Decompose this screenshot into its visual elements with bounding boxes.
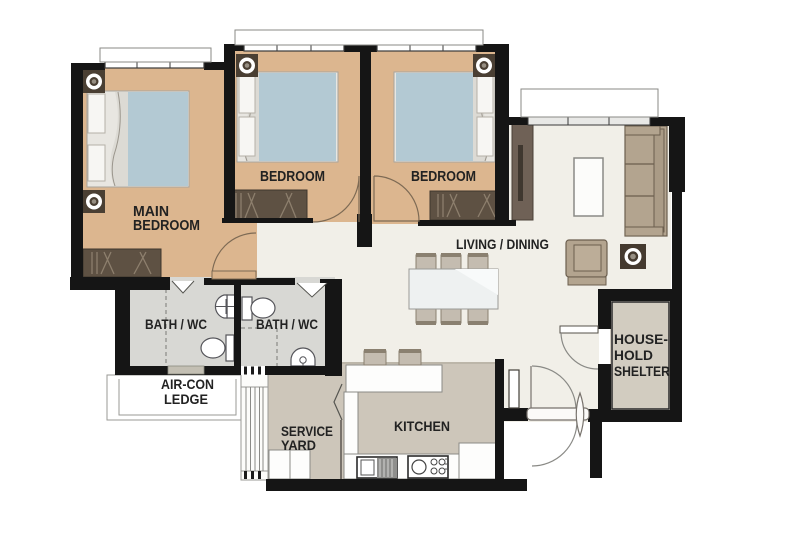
svg-text:HOLD: HOLD (614, 347, 653, 363)
svg-text:BATH / WC: BATH / WC (145, 317, 207, 332)
svg-text:BEDROOM: BEDROOM (133, 218, 200, 234)
svg-text:YARD: YARD (281, 437, 316, 453)
svg-text:SHELTER: SHELTER (614, 363, 670, 379)
svg-text:KITCHEN: KITCHEN (394, 418, 450, 434)
svg-text:BATH / WC: BATH / WC (256, 317, 318, 332)
svg-text:BEDROOM: BEDROOM (411, 169, 476, 185)
svg-text:HOUSE-: HOUSE- (614, 331, 668, 347)
svg-text:BEDROOM: BEDROOM (260, 169, 325, 185)
svg-text:AIR-CON: AIR-CON (161, 376, 214, 392)
svg-text:LEDGE: LEDGE (164, 391, 208, 407)
svg-text:LIVING / DINING: LIVING / DINING (456, 236, 549, 252)
